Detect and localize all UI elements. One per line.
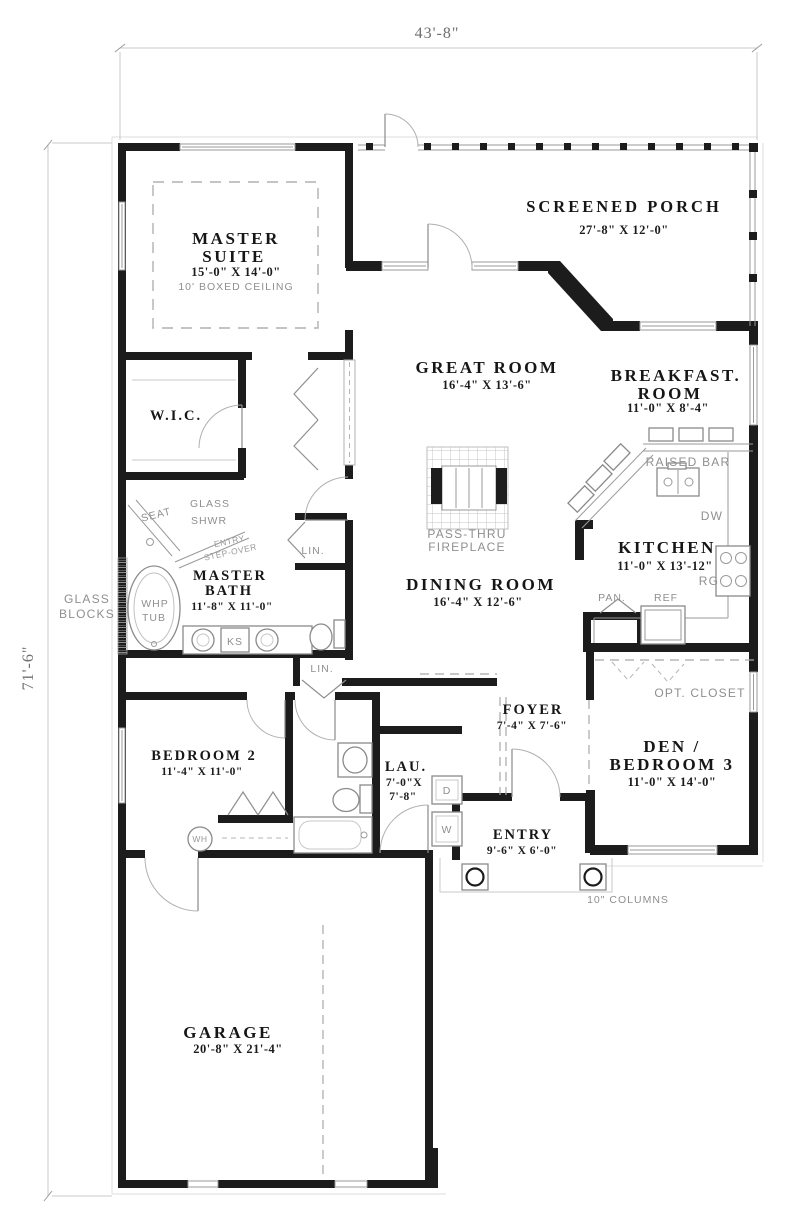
- room-label-kitchen: KITCHEN: [618, 538, 716, 557]
- bar-stool: [679, 428, 703, 441]
- wic-door: [199, 405, 242, 448]
- room-label-foyer: FOYER: [503, 702, 564, 718]
- wall: [118, 143, 126, 1188]
- room-label-screened-porch: SCREENED PORCH: [526, 197, 722, 216]
- wall: [118, 143, 180, 151]
- label-fireplace: FIREPLACE: [428, 540, 506, 554]
- dimension-height-label: 71'-6": [20, 646, 37, 691]
- room-label-garage: GARAGE: [183, 1023, 273, 1042]
- wall: [717, 845, 758, 855]
- bar-stool: [568, 486, 594, 512]
- wall: [218, 1180, 335, 1188]
- window: [188, 1181, 218, 1187]
- wall: [605, 321, 640, 331]
- porch-column: [580, 864, 606, 890]
- wall: [118, 850, 145, 858]
- wall: [575, 520, 584, 560]
- wall: [218, 815, 293, 823]
- screen-porch-walls: [358, 143, 758, 326]
- label-seat: SEAT: [140, 506, 173, 525]
- wall: [342, 678, 497, 686]
- label-glass-shwr-1: GLASS: [190, 498, 230, 510]
- room-label-master-bath-2: BATH: [205, 583, 253, 599]
- wall: [118, 352, 252, 360]
- bathtub: [294, 817, 372, 853]
- wall: [118, 472, 244, 480]
- label-tub: TUB: [142, 612, 166, 624]
- bifold-door: [294, 368, 318, 420]
- window: [472, 262, 518, 270]
- opt-closet-door: [612, 662, 644, 680]
- floor-plan-drawing: 43'-8" 71'-6": [0, 0, 800, 1221]
- wall: [425, 850, 433, 1155]
- room-size-den: 11'-0" X 14'-0": [628, 775, 717, 789]
- bar-stool: [709, 428, 733, 441]
- label-dryer: D: [443, 785, 452, 797]
- room-size-kitchen: 11'-0" X 13'-12": [617, 559, 713, 573]
- bifold-door: [258, 792, 288, 815]
- bath-sink: [338, 743, 372, 777]
- room-label-den-2: BEDROOM 3: [610, 755, 735, 774]
- window: [382, 262, 428, 270]
- room-label-wic: W.I.C.: [150, 408, 202, 424]
- room-label-dining: DINING ROOM: [406, 575, 556, 594]
- floor-plan-page: 43'-8" 71'-6": [0, 0, 800, 1221]
- room-label-laundry: LAU.: [385, 759, 427, 775]
- room-label-great-room: GREAT ROOM: [416, 358, 559, 377]
- room-label-master-suite-1: MASTER: [192, 229, 280, 248]
- wall: [346, 261, 382, 271]
- refrigerator: [641, 606, 685, 644]
- wall: [367, 1180, 433, 1188]
- room-label-bedroom2: BEDROOM 2: [151, 748, 256, 764]
- label-dw: DW: [701, 509, 723, 523]
- range: [716, 546, 750, 596]
- wall: [345, 520, 353, 660]
- dimension-width-label: 43'-8": [415, 25, 460, 42]
- label-lin-lower: LIN.: [310, 663, 333, 675]
- label-glass: GLASS: [64, 592, 110, 606]
- label-blocks: BLOCKS: [59, 607, 115, 621]
- wall: [372, 692, 380, 853]
- window: [628, 846, 717, 854]
- wall: [295, 513, 347, 520]
- room-label-den-1: DEN /: [643, 737, 700, 756]
- bar-stool: [649, 428, 673, 441]
- shower: [128, 500, 249, 568]
- wall: [345, 143, 353, 268]
- room-size-breakfast: 11'-0" X 8'-4": [627, 401, 709, 415]
- room-label-breakfast-1: BREAKFAST.: [611, 366, 742, 385]
- vanity: [183, 626, 312, 654]
- wall: [295, 563, 347, 570]
- bedroom2-door: [247, 700, 285, 738]
- room-size-screened-porch: 27'-8" X 12'-0": [579, 223, 668, 237]
- wall: [293, 658, 300, 686]
- room-label-master-suite-2: SUITE: [202, 247, 266, 266]
- window: [180, 144, 295, 150]
- label-columns: 10" COLUMNS: [587, 894, 669, 906]
- wall: [285, 692, 293, 823]
- room-size-bedroom2: 11'-4" X 11'-0": [161, 766, 243, 778]
- wall: [585, 793, 593, 853]
- hall-bath-door: [295, 700, 335, 740]
- front-door: [512, 749, 560, 797]
- room-size-entry: 9'-6" X 6'-0": [487, 845, 557, 857]
- bar-stool: [604, 444, 630, 470]
- pass-thru-fireplace: [427, 447, 508, 529]
- window: [119, 202, 125, 270]
- bifold-door: [294, 420, 318, 470]
- room-size-master-bath: 11'-8" X 11'-0": [191, 601, 273, 613]
- window: [750, 672, 757, 712]
- wall: [749, 712, 758, 853]
- label-washer: W: [442, 824, 453, 836]
- room-label-master-bath-1: MASTER: [193, 568, 267, 584]
- toilet: [333, 785, 372, 813]
- entry-porch: [440, 858, 612, 892]
- window: [750, 345, 757, 425]
- label-opt-closet: OPT. CLOSET: [654, 686, 745, 700]
- label-raised-bar: RAISED BAR: [646, 455, 731, 469]
- glass-block-window: [118, 558, 127, 654]
- wall: [548, 261, 613, 331]
- wall: [583, 612, 591, 648]
- label-ref: REF: [654, 592, 678, 604]
- label-rg: RG: [699, 574, 719, 588]
- wall: [590, 845, 628, 855]
- room-label-entry: ENTRY: [493, 827, 553, 843]
- wall: [586, 651, 594, 700]
- wall: [345, 330, 353, 360]
- master-toilet: [310, 620, 345, 650]
- wall: [238, 360, 246, 408]
- porch-door: [428, 224, 472, 268]
- room-size-laundry-1: 7'-0"X: [386, 777, 422, 789]
- room-size-master-suite: 15'-0" X 14'-0": [191, 265, 280, 279]
- wall: [295, 143, 353, 151]
- room-note-master-suite: 10' BOXED CEILING: [178, 281, 293, 293]
- porch-column: [462, 864, 488, 890]
- window: [640, 322, 716, 330]
- room-size-dining: 16'-4" X 12'-6": [433, 595, 522, 609]
- screen-door: [385, 114, 418, 147]
- label-water-heater: WH: [192, 834, 207, 844]
- room-size-great-room: 16'-4" X 13'-6": [442, 378, 531, 392]
- opt-closet-door: [652, 664, 684, 682]
- window: [335, 1181, 367, 1187]
- label-pan: PAN.: [598, 592, 626, 604]
- label-glass-shwr-2: SHWR: [191, 515, 227, 527]
- laundry-door: [380, 805, 428, 853]
- label-pass-thru: PASS-THRU: [427, 527, 506, 541]
- garage-entry-door: [145, 858, 198, 911]
- room-size-garage: 20'-8" X 21'-4": [193, 1042, 282, 1056]
- bifold-door: [228, 792, 258, 815]
- label-lin-hall: LIN.: [301, 545, 324, 557]
- room-size-laundry-2: 7'-8": [389, 791, 416, 803]
- label-ks: KS: [227, 636, 243, 648]
- label-whp: WHP: [141, 598, 169, 610]
- wall: [118, 1180, 188, 1188]
- room-size-foyer: 7'-4" X 7'-6": [497, 720, 567, 732]
- wall: [118, 692, 247, 700]
- window: [119, 728, 125, 803]
- wall: [380, 726, 462, 734]
